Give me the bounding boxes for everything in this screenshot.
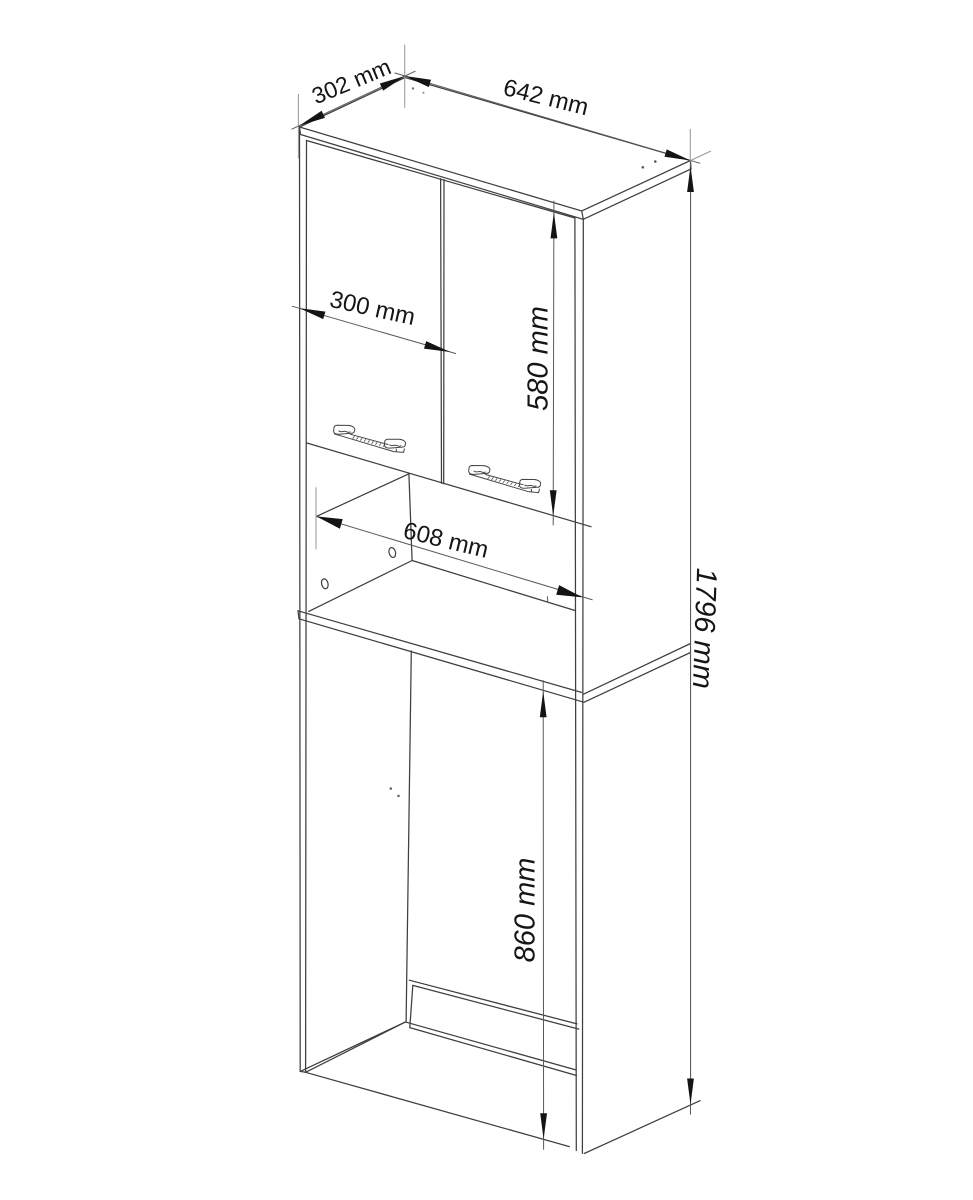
svg-text:580 mm: 580 mm (523, 306, 555, 411)
svg-text:1796 mm: 1796 mm (686, 567, 722, 689)
svg-text:860 mm: 860 mm (510, 858, 542, 963)
